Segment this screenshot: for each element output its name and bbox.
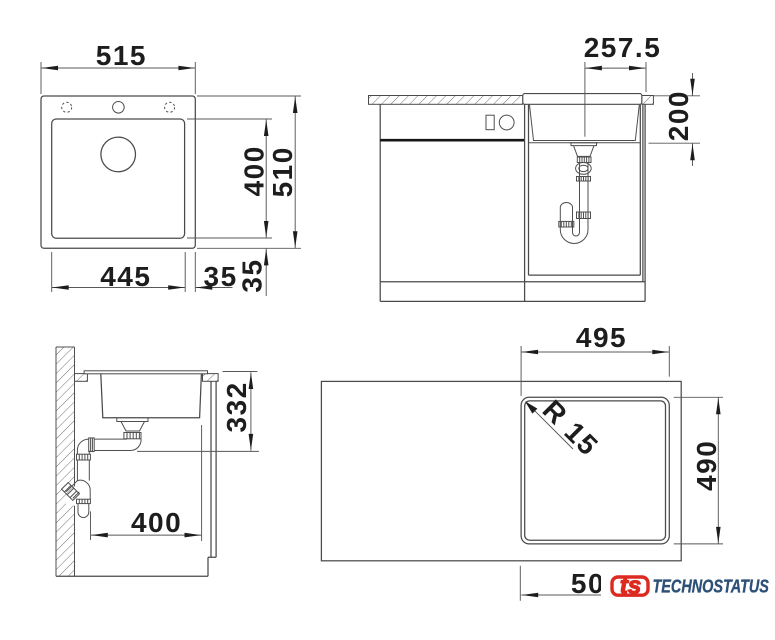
svg-text:400: 400	[239, 145, 270, 196]
svg-text:515: 515	[96, 40, 147, 71]
svg-text:50: 50	[571, 568, 605, 599]
svg-text:495: 495	[576, 322, 627, 353]
svg-text:200: 200	[663, 90, 694, 141]
svg-text:400: 400	[131, 507, 182, 538]
svg-text:510: 510	[267, 146, 298, 197]
svg-text:445: 445	[100, 261, 151, 292]
svg-text:35: 35	[237, 258, 268, 292]
svg-text:TECHNOSTATUS: TECHNOSTATUS	[653, 576, 769, 597]
svg-text:332: 332	[221, 381, 252, 432]
svg-text:35: 35	[204, 261, 238, 292]
svg-text:490: 490	[691, 440, 722, 491]
svg-text:257.5: 257.5	[584, 32, 662, 63]
svg-text:ts: ts	[620, 573, 641, 600]
